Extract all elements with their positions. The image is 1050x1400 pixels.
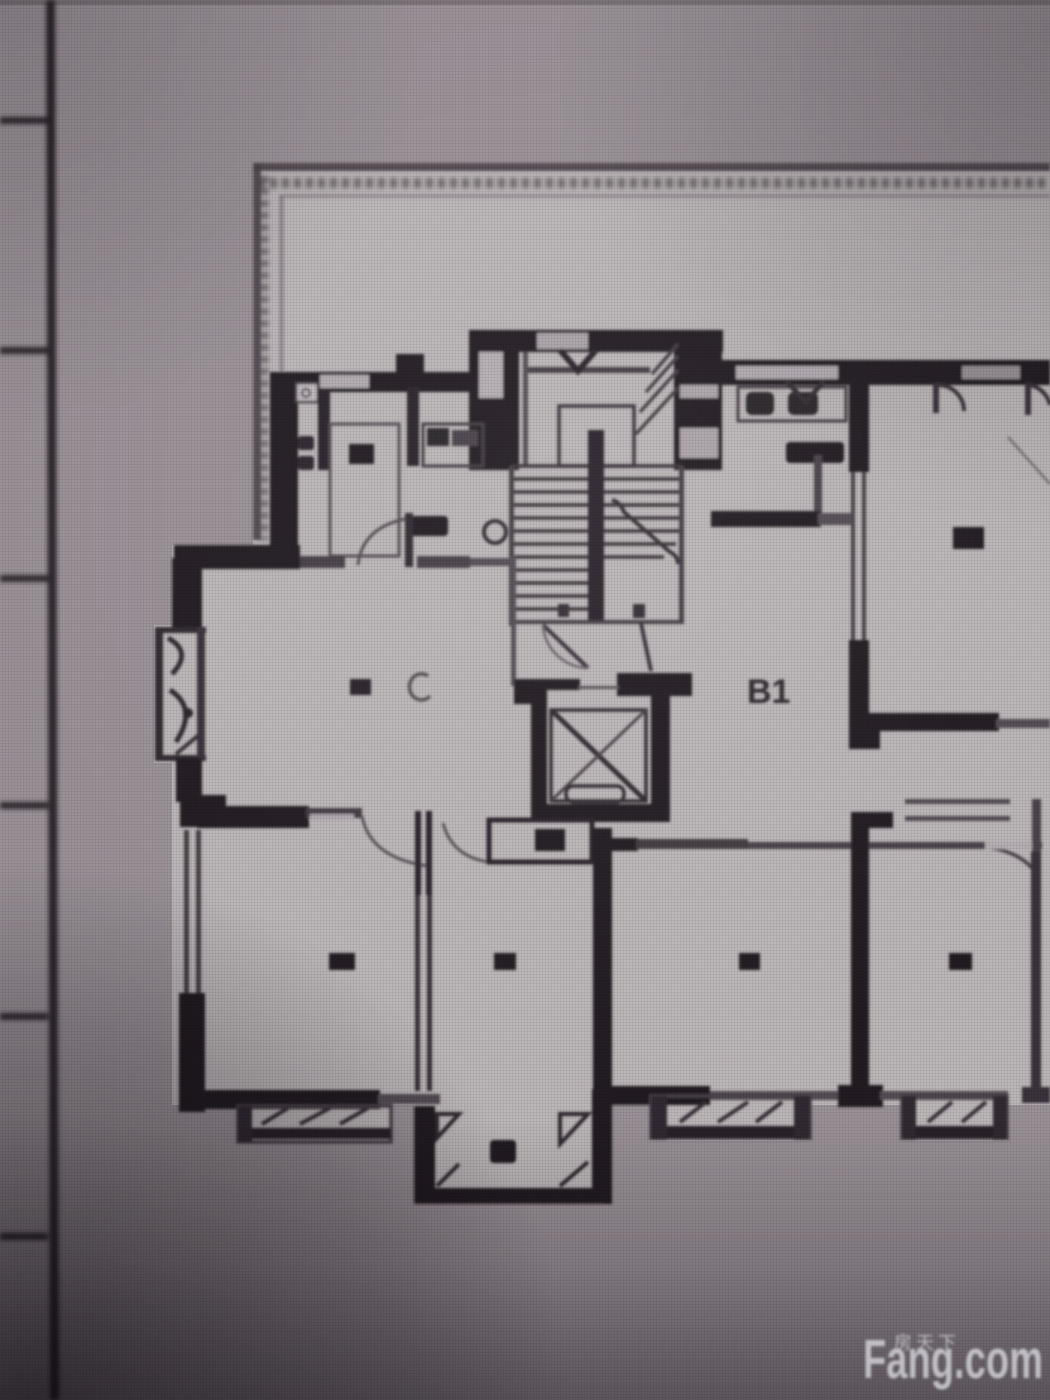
svg-text:Fang.com: Fang.com — [863, 1328, 1043, 1390]
